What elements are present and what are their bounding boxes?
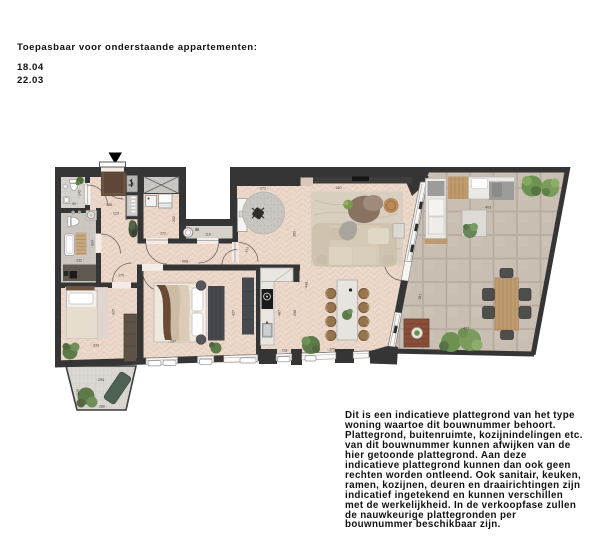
svg-text:· 608 ·: · 608 · [180,260,190,264]
svg-text:· 427 ·: · 427 · [112,307,116,317]
svg-text:· 333 ·: · 333 · [91,344,101,348]
svg-text:· 118 ·: · 118 · [279,349,289,353]
svg-text:· 363 ·: · 363 · [293,229,297,239]
svg-text:· 427 ·: · 427 · [232,308,236,318]
svg-text:· 188 ·: · 188 · [104,203,114,207]
svg-text:· 295 ·: · 295 · [96,378,106,382]
svg-text:· 142 ·: · 142 · [78,188,82,198]
svg-text:· 172 ·: · 172 · [158,232,168,236]
svg-text:· 487 ·: · 487 · [278,308,282,318]
svg-text:· 297 ·: · 297 · [168,340,178,344]
svg-text:· 298 ·: · 298 · [293,308,297,318]
svg-text:· 170 ·: · 170 · [116,274,126,278]
svg-text:· 334 ·: · 334 · [91,238,95,248]
svg-text:· 90 ·: · 90 · [70,202,78,206]
svg-text:· 123 ·: · 123 · [111,212,121,216]
svg-text:· 110 ·: · 110 · [203,233,213,237]
svg-text:· 132 ·: · 132 · [74,259,84,263]
svg-text:· 375 ·: · 375 · [327,348,337,352]
svg-text:· 340 ·: · 340 · [333,186,343,190]
svg-text:· 280 ·: · 280 · [97,405,107,409]
svg-text:· 252 ·: · 252 · [172,214,176,224]
svg-text:· 272 ·: · 272 · [258,187,268,191]
svg-text:· 403 ·: · 403 · [483,206,493,210]
svg-text:· 125 ·: · 125 · [76,387,80,397]
